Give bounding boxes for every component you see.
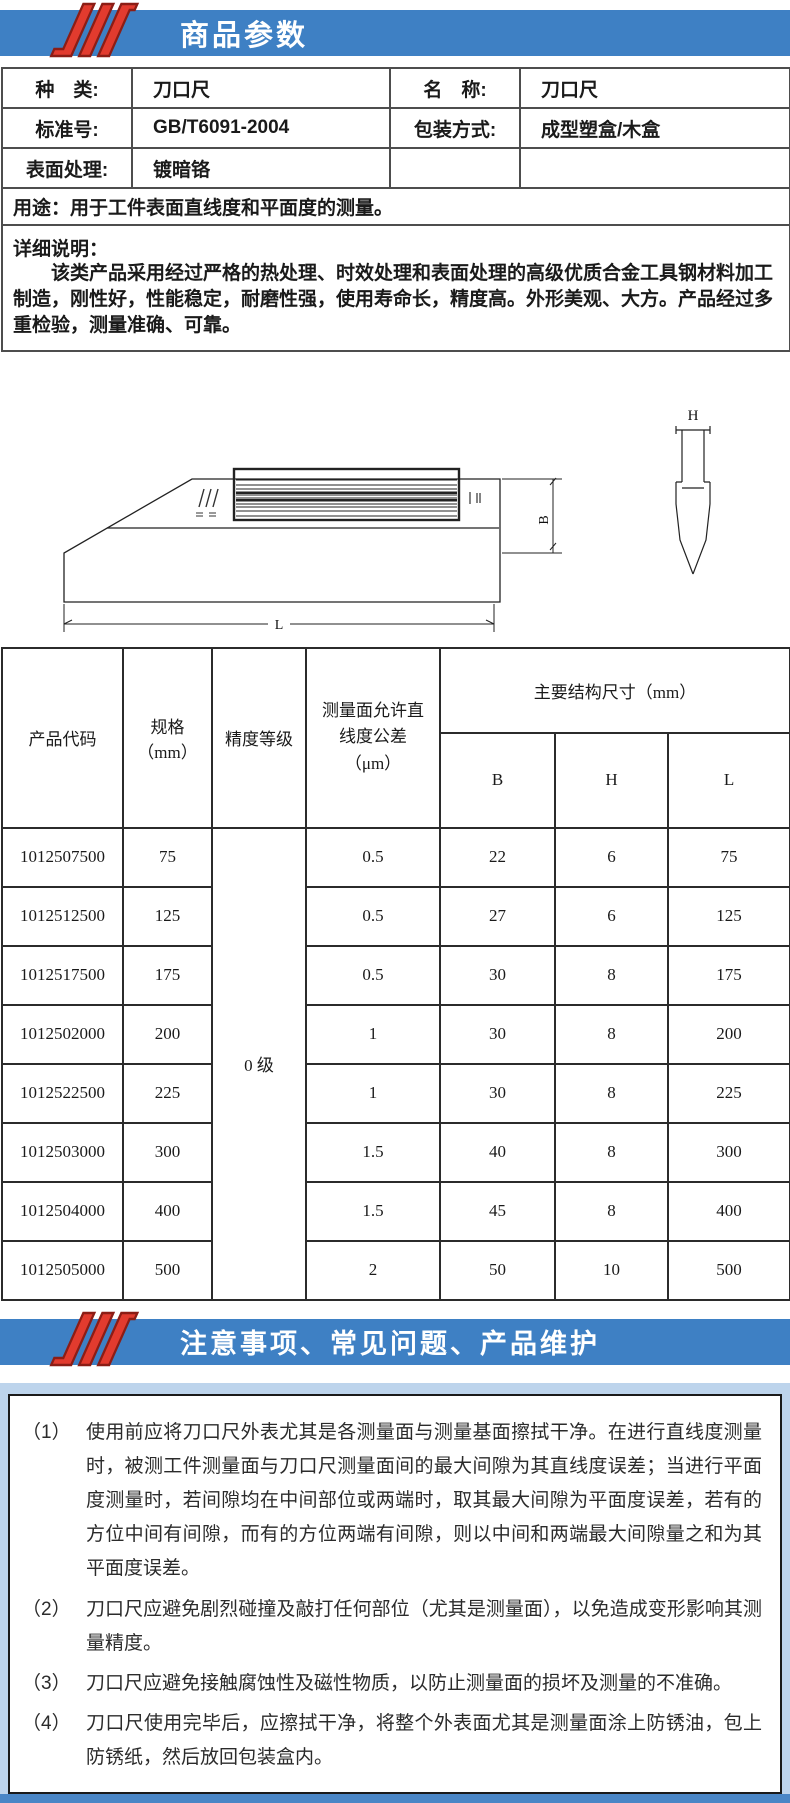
table-row: 种 类: 刀口尺 名 称: 刀口尺 <box>2 68 790 108</box>
col-header-accuracy-grade: 精度等级 <box>212 648 306 828</box>
cell-H: 8 <box>555 1064 668 1123</box>
usage-text: 用于工件表面直线度和平面度的测量。 <box>70 198 393 219</box>
cell-code: 1012505000 <box>2 1241 123 1300</box>
note-number: （3） <box>22 1667 86 1701</box>
dimension-H-label: H <box>688 408 699 424</box>
list-item: （4） 刀口尺使用完毕后，应擦拭干净，将整个外表面尤其是测量面涂上防锈油，包上防… <box>22 1707 762 1775</box>
cell-accuracy-grade: 0 级 <box>212 828 306 1300</box>
table-row: 用途：用于工件表面直线度和平面度的测量。 <box>2 188 790 225</box>
cell-H: 10 <box>555 1241 668 1300</box>
bottom-blue-strip <box>0 1794 790 1803</box>
cell-B: 45 <box>440 1182 555 1241</box>
table-row: 标准号: GB/T6091-2004 包装方式: 成型塑盒/木盒 <box>2 108 790 148</box>
brand-logo-icon <box>28 0 158 68</box>
cell-code: 1012522500 <box>2 1064 123 1123</box>
product-params-table: 种 类: 刀口尺 名 称: 刀口尺 标准号: GB/T6091-2004 包装方… <box>1 67 790 352</box>
hatched-panel <box>234 469 459 520</box>
cell-L: 400 <box>668 1182 790 1241</box>
cell-size: 300 <box>123 1123 212 1182</box>
note-text: 刀口尺应避免接触腐蚀性及磁性物质，以防止测量面的损坏及测量的不准确。 <box>86 1667 762 1701</box>
table-row: 1012504000 400 1.5 45 8 400 <box>2 1182 790 1241</box>
param-label-standard: 标准号: <box>2 108 132 148</box>
cell-tolerance: 1 <box>306 1005 440 1064</box>
param-value-packaging: 成型塑盒/木盒 <box>520 108 790 148</box>
table-row: 1012502000 200 1 30 8 200 <box>2 1005 790 1064</box>
dimension-L-label: L <box>275 618 284 633</box>
list-item: （3） 刀口尺应避免接触腐蚀性及磁性物质，以防止测量面的损坏及测量的不准确。 <box>22 1667 762 1701</box>
table-row: 1012517500 175 0.5 30 8 175 <box>2 946 790 1005</box>
note-number: （4） <box>22 1707 86 1775</box>
col-header-size: 规格 （mm） <box>123 648 212 828</box>
section-header-product-params: 商品参数 <box>0 10 790 56</box>
table-row: 详细说明： 该类产品采用经过严格的热处理、时效处理和表面处理的高级优质合金工具钢… <box>2 225 790 351</box>
param-value-surface: 镀暗铬 <box>132 148 390 188</box>
cell-tolerance: 1 <box>306 1064 440 1123</box>
cell-B: 40 <box>440 1123 555 1182</box>
cell-L: 175 <box>668 946 790 1005</box>
col-group-main-dimensions: 主要结构尺寸（mm） <box>440 648 790 733</box>
cell-B: 50 <box>440 1241 555 1300</box>
table-row: 1012522500 225 1 30 8 225 <box>2 1064 790 1123</box>
cell-code: 1012512500 <box>2 887 123 946</box>
section-header-precautions: 注意事项、常见问题、产品维护 <box>0 1319 790 1365</box>
cell-B: 27 <box>440 887 555 946</box>
notes-box: （1） 使用前应将刀口尺外表尤其是各测量面与测量基面擦拭干净。在进行直线度测量时… <box>8 1394 782 1794</box>
list-item: （2） 刀口尺应避免剧烈碰撞及敲打任何部位（尤其是测量面），以免造成变形影响其测… <box>22 1593 762 1661</box>
cell-B: 30 <box>440 1064 555 1123</box>
cell-size: 175 <box>123 946 212 1005</box>
col-header-B: B <box>440 733 555 828</box>
cell-B: 30 <box>440 1005 555 1064</box>
note-number: （1） <box>22 1416 86 1587</box>
param-label-name: 名 称: <box>390 68 520 108</box>
cell-size: 400 <box>123 1182 212 1241</box>
spec-table: 产品代码 规格 （mm） 精度等级 测量面允许直 线度公差 （μm） 主要结构尺… <box>1 647 790 1301</box>
cell-code: 1012503000 <box>2 1123 123 1182</box>
dimension-B-label: B <box>537 515 552 524</box>
cell-B: 22 <box>440 828 555 887</box>
knife-edge-ruler-technical-drawing: B L H <box>0 352 790 647</box>
cell-H: 8 <box>555 1123 668 1182</box>
cell-L: 300 <box>668 1123 790 1182</box>
cell-H: 8 <box>555 1005 668 1064</box>
note-text: 使用前应将刀口尺外表尤其是各测量面与测量基面擦拭干净。在进行直线度测量时，被测工… <box>86 1416 762 1587</box>
detail-text: 该类产品采用经过严格的热处理、时效处理和表面处理的高级优质合金工具钢材料加工制造… <box>13 261 779 340</box>
graduation-tick-mark <box>470 492 480 504</box>
engraved-logo-mark <box>196 489 218 516</box>
detail-label: 详细说明： <box>13 234 779 261</box>
brand-logo-icon <box>28 1307 158 1377</box>
cell-tolerance: 2 <box>306 1241 440 1300</box>
cell-H: 8 <box>555 1182 668 1241</box>
param-label-category: 种 类: <box>2 68 132 108</box>
col-header-L: L <box>668 733 790 828</box>
cell-size: 225 <box>123 1064 212 1123</box>
cell-tolerance: 0.5 <box>306 887 440 946</box>
cell-code: 1012504000 <box>2 1182 123 1241</box>
notes-section: （1） 使用前应将刀口尺外表尤其是各测量面与测量基面擦拭干净。在进行直线度测量时… <box>0 1383 790 1794</box>
cell-size: 125 <box>123 887 212 946</box>
param-value-standard: GB/T6091-2004 <box>132 108 390 148</box>
col-header-straightness-tolerance: 测量面允许直 线度公差 （μm） <box>306 648 440 828</box>
param-label-surface: 表面处理: <box>2 148 132 188</box>
table-row: 1012505000 500 2 50 10 500 <box>2 1241 790 1300</box>
cell-tolerance: 0.5 <box>306 828 440 887</box>
cell-L: 125 <box>668 887 790 946</box>
cell-L: 225 <box>668 1064 790 1123</box>
col-header-H: H <box>555 733 668 828</box>
param-value-empty <box>520 148 790 188</box>
cell-code: 1012517500 <box>2 946 123 1005</box>
cell-code: 1012502000 <box>2 1005 123 1064</box>
param-label-packaging: 包装方式: <box>390 108 520 148</box>
cell-size: 200 <box>123 1005 212 1064</box>
cell-H: 6 <box>555 887 668 946</box>
usage-label: 用途： <box>13 198 70 219</box>
usage-row: 用途：用于工件表面直线度和平面度的测量。 <box>2 188 790 225</box>
side-view-outline <box>64 479 500 602</box>
cell-H: 8 <box>555 946 668 1005</box>
table-row: 表面处理: 镀暗铬 <box>2 148 790 188</box>
detail-row: 详细说明： 该类产品采用经过严格的热处理、时效处理和表面处理的高级优质合金工具钢… <box>2 225 790 351</box>
cell-tolerance: 0.5 <box>306 946 440 1005</box>
cell-L: 200 <box>668 1005 790 1064</box>
note-number: （2） <box>22 1593 86 1661</box>
cell-B: 30 <box>440 946 555 1005</box>
cross-section-profile <box>676 426 710 574</box>
cell-L: 75 <box>668 828 790 887</box>
cell-H: 6 <box>555 828 668 887</box>
table-row: 1012512500 125 0.5 27 6 125 <box>2 887 790 946</box>
param-value-name: 刀口尺 <box>520 68 790 108</box>
table-row: 1012503000 300 1.5 40 8 300 <box>2 1123 790 1182</box>
cell-code: 1012507500 <box>2 828 123 887</box>
dimension-B <box>502 478 562 553</box>
section-title: 商品参数 <box>180 12 308 54</box>
table-header-row: 产品代码 规格 （mm） 精度等级 测量面允许直 线度公差 （μm） 主要结构尺… <box>2 648 790 733</box>
note-text: 刀口尺应避免剧烈碰撞及敲打任何部位（尤其是测量面），以免造成变形影响其测量精度。 <box>86 1593 762 1661</box>
cell-size: 75 <box>123 828 212 887</box>
list-item: （1） 使用前应将刀口尺外表尤其是各测量面与测量基面擦拭干净。在进行直线度测量时… <box>22 1416 762 1587</box>
param-label-empty <box>390 148 520 188</box>
cell-size: 500 <box>123 1241 212 1300</box>
param-value-category: 刀口尺 <box>132 68 390 108</box>
cell-L: 500 <box>668 1241 790 1300</box>
cell-tolerance: 1.5 <box>306 1123 440 1182</box>
section-title: 注意事项、常见问题、产品维护 <box>180 1322 600 1361</box>
table-row: 1012507500 75 0 级 0.5 22 6 75 <box>2 828 790 887</box>
note-text: 刀口尺使用完毕后，应擦拭干净，将整个外表面尤其是测量面涂上防锈油，包上防锈纸，然… <box>86 1707 762 1775</box>
col-header-product-code: 产品代码 <box>2 648 123 828</box>
cell-tolerance: 1.5 <box>306 1182 440 1241</box>
